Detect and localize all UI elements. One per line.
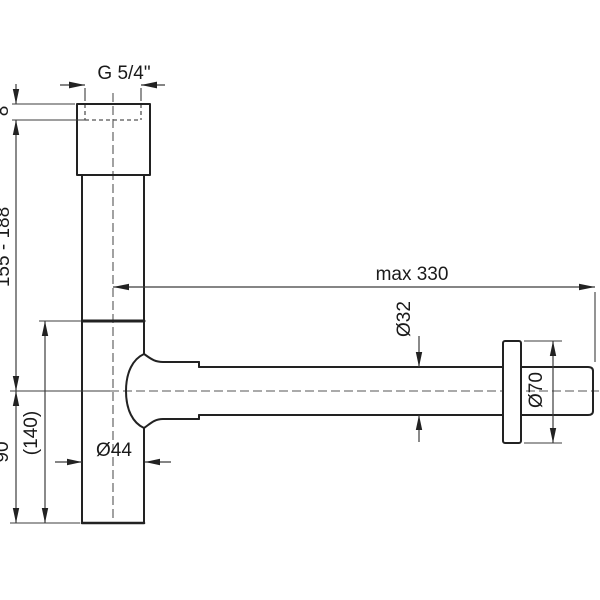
arrowhead: [42, 321, 48, 336]
outlet-height-label: 90: [0, 441, 13, 462]
arrowhead: [42, 508, 48, 523]
bottle-trap-drawing: G 5/4" max 330 Ø44 8 155 - 188 90 (140) …: [0, 0, 600, 600]
arrowhead: [550, 428, 556, 443]
arrowhead: [13, 508, 19, 523]
centerlines: [85, 93, 599, 523]
outlet-nut-bottom: [144, 419, 199, 428]
arrowhead: [145, 459, 160, 465]
max-reach-label: max 330: [376, 264, 449, 285]
total-height-label: (140): [21, 411, 42, 455]
thread-size-label: G 5/4": [97, 63, 150, 84]
pipe-diameter-label: Ø32: [394, 301, 415, 337]
arrowhead: [579, 284, 595, 290]
thread-depth-label: 8: [0, 106, 13, 117]
technical-drawing-canvas: G 5/4" max 330 Ø44 8 155 - 188 90 (140) …: [0, 0, 600, 600]
arrowhead: [69, 82, 85, 89]
outlet-nut-top: [144, 354, 199, 362]
arrowhead: [113, 284, 129, 290]
body-diameter-label: Ø44: [96, 440, 132, 461]
arrowhead: [416, 415, 422, 430]
arrowhead: [13, 89, 19, 104]
arrowhead: [416, 352, 422, 367]
arrowhead: [13, 376, 19, 391]
arrowhead: [550, 341, 556, 356]
arrowhead: [67, 459, 82, 465]
wall-rosette: [503, 341, 521, 443]
rosette-diameter-label: Ø70: [526, 372, 547, 408]
arrowhead: [13, 120, 19, 135]
arrowhead: [13, 391, 19, 406]
height-range-label: 155 - 188: [0, 207, 14, 287]
